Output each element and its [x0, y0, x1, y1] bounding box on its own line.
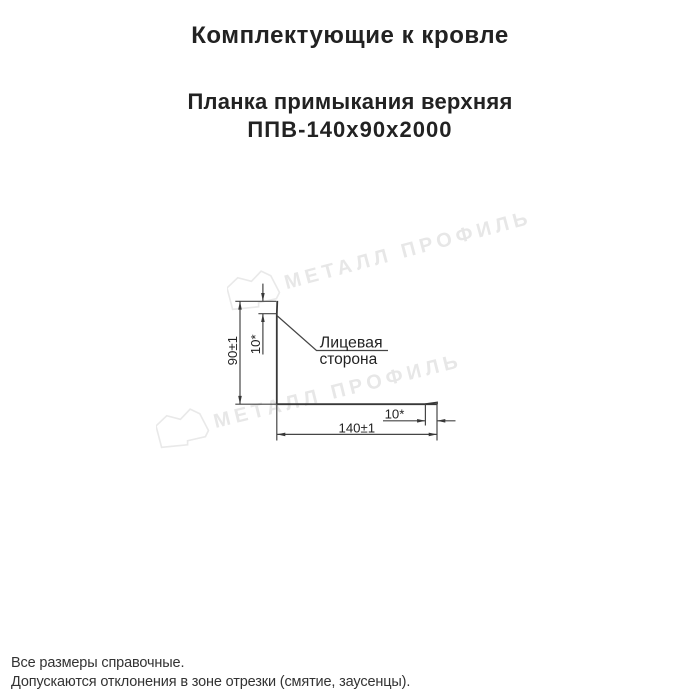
svg-text:Лицевая: Лицевая: [320, 334, 383, 351]
svg-text:90±1: 90±1: [225, 336, 240, 365]
svg-text:10*: 10*: [385, 407, 405, 422]
svg-text:сторона: сторона: [320, 351, 378, 368]
svg-text:140±1: 140±1: [339, 421, 376, 436]
svg-text:10*: 10*: [248, 334, 263, 354]
